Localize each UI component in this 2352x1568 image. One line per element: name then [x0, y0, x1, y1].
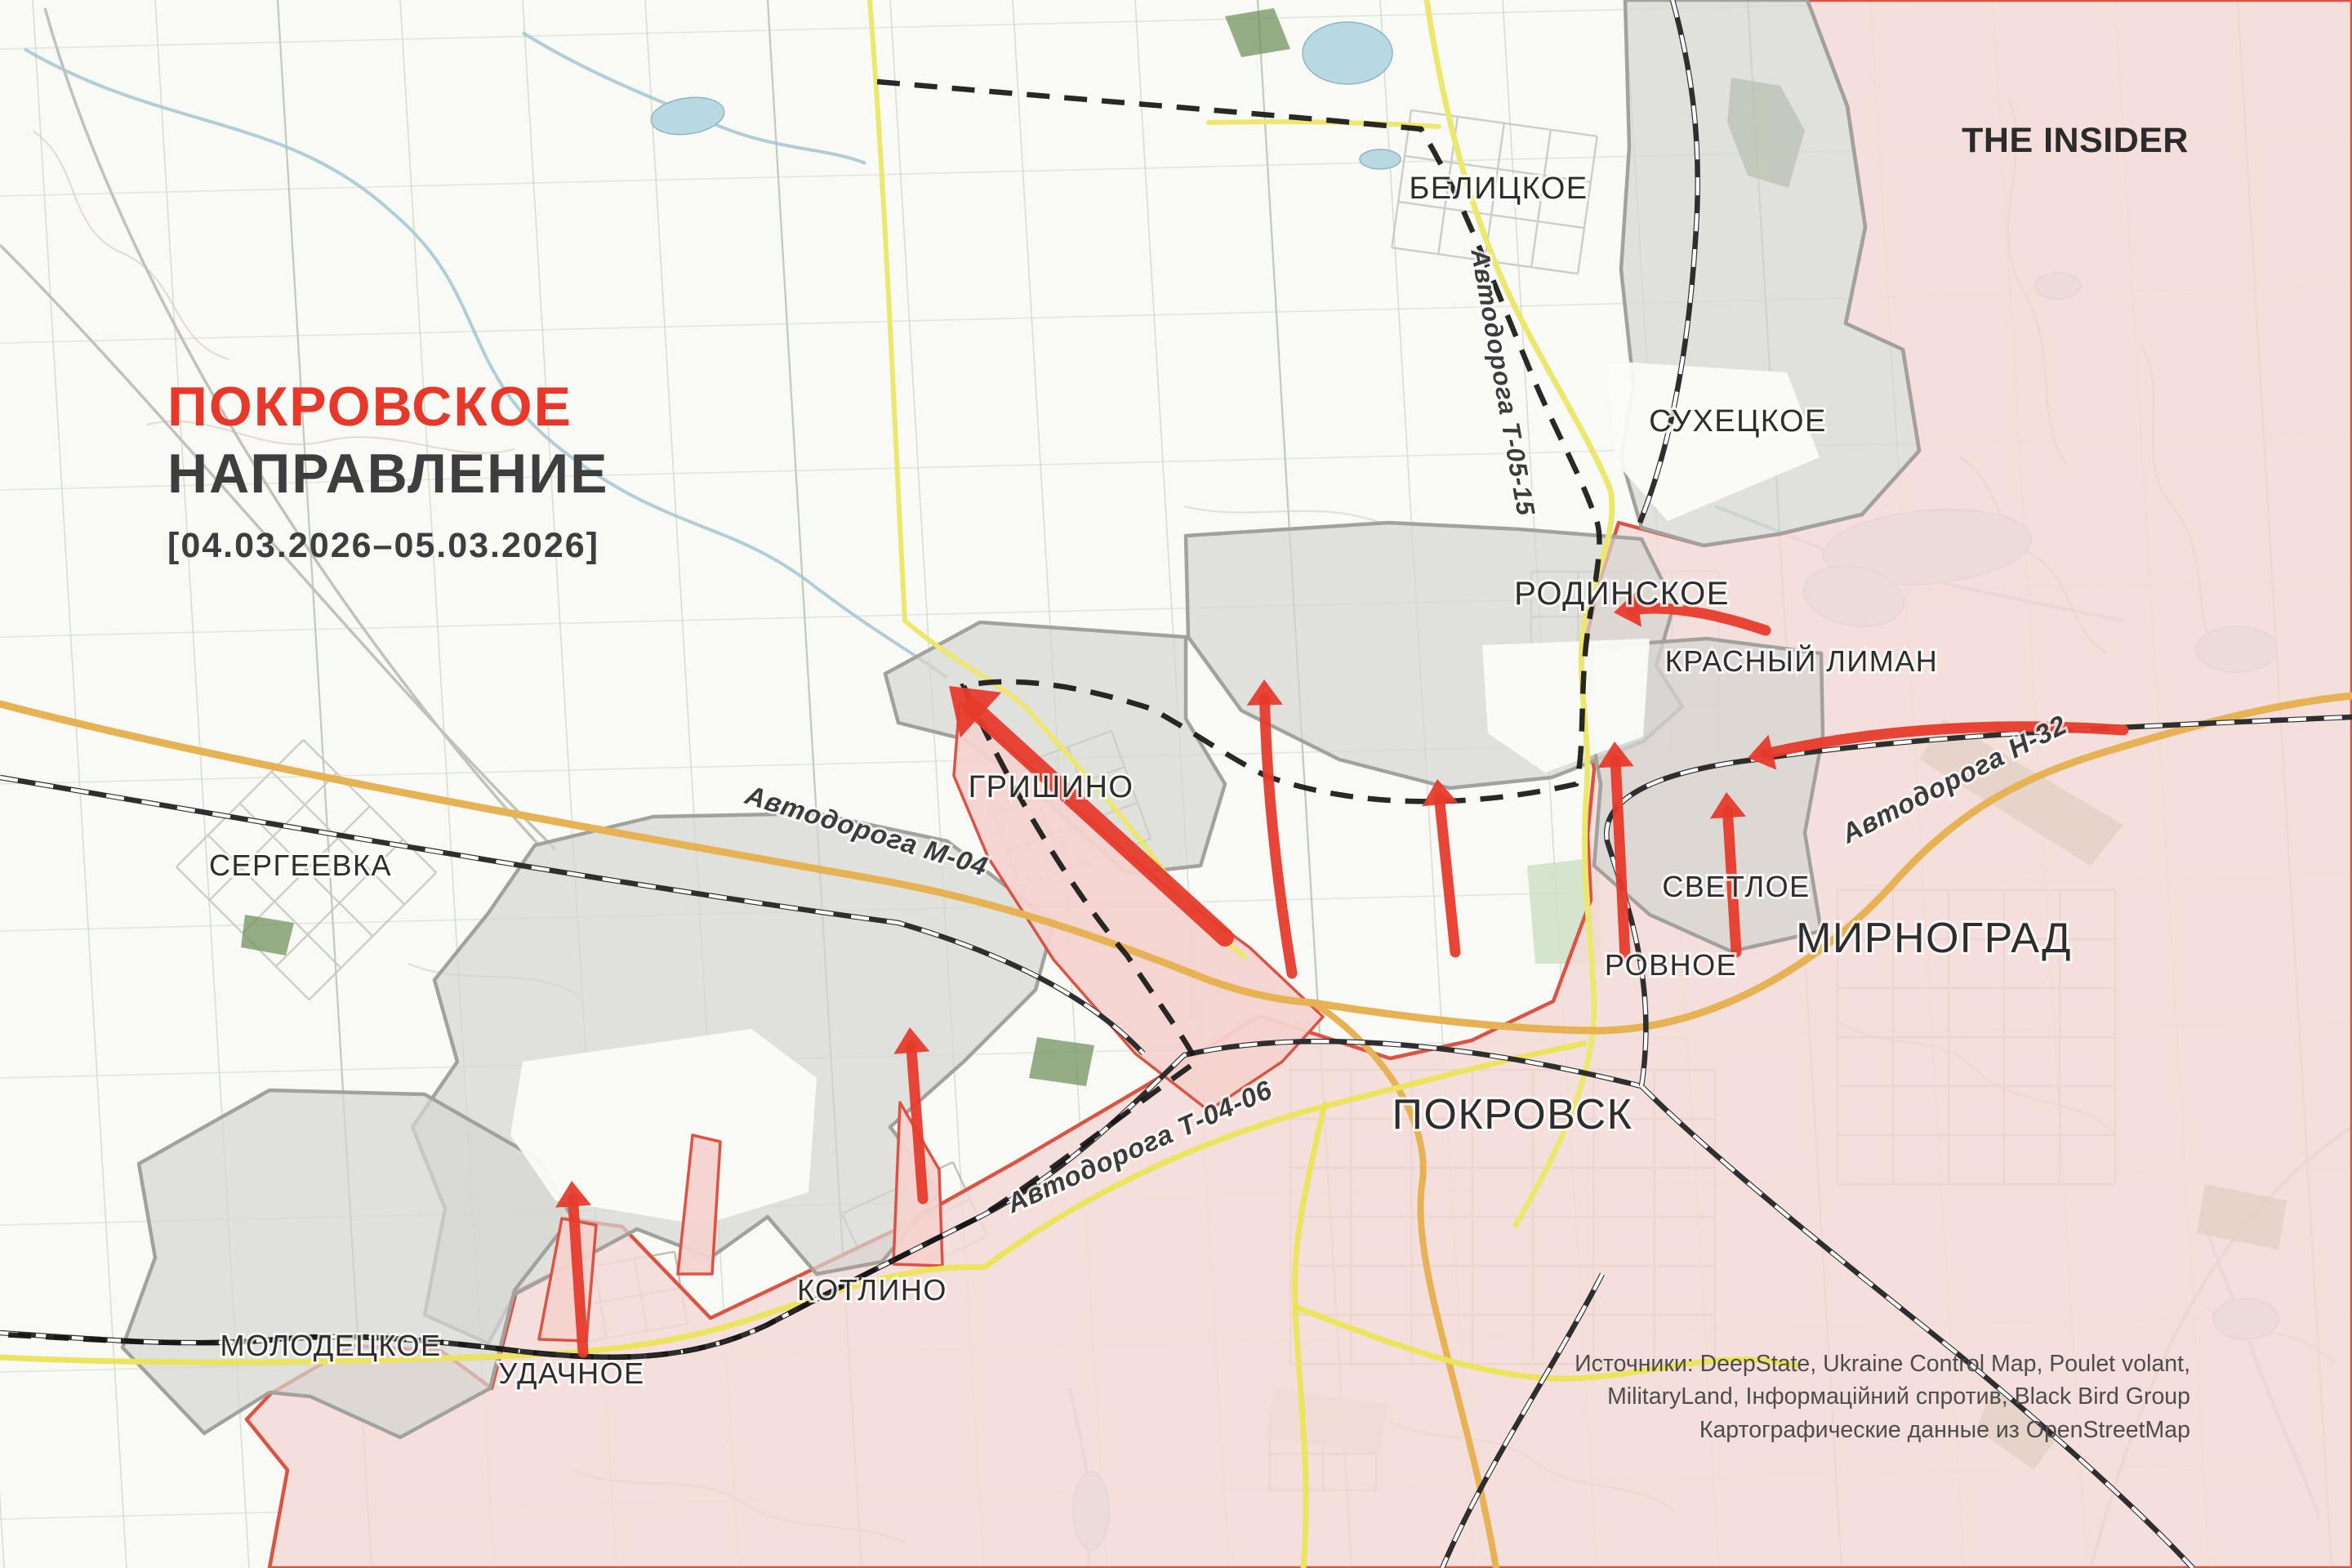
woodland	[1029, 1037, 1094, 1086]
map-stage: БЕЛИЦКОЕСУХЕЦКОЕРОДИНСКОЕКРАСНЫЙ ЛИМАНГР…	[0, 0, 2352, 1568]
place-label-belitskoe: БЕЛИЦКОЕ	[1409, 171, 1588, 206]
map-svg: БЕЛИЦКОЕСУХЕЦКОЕРОДИНСКОЕКРАСНЫЙ ЛИМАНГР…	[0, 0, 2352, 1568]
place-label-pokrovsk: ПОКРОВСК	[1392, 1091, 1633, 1138]
place-label-sukhetskoe: СУХЕЦКОЕ	[1649, 404, 1827, 439]
brand-logo: THE INSIDER	[1962, 121, 2189, 161]
title-date-range: [04.03.2026–05.03.2026]	[167, 528, 609, 565]
place-label-rodinskoe: РОДИНСКОЕ	[1514, 576, 1730, 612]
map-title-block: ПОКРОВСКОЕ НАПРАВЛЕНИЕ [04.03.2026–05.03…	[167, 377, 609, 565]
lake	[1303, 22, 1392, 84]
place-label-udachnoe: УДАЧНОЕ	[498, 1356, 644, 1390]
credits-cartography: Картографические данные из OpenStreetMap	[1575, 1414, 2190, 1446]
place-label-svetloe: СВЕТЛОЕ	[1662, 870, 1810, 903]
credits-block: Источники: DeepState, Ukraine Control Ma…	[1575, 1347, 2190, 1446]
credits-sources-line2: MilitaryLand, Інформаційний спротив, Bla…	[1575, 1380, 2190, 1413]
place-label-molodetskoe: МОЛОДЕЦКОЕ	[220, 1329, 441, 1362]
place-label-mirnograd: МИРНОГРАД	[1796, 915, 2072, 962]
title-direction-main: НАПРАВЛЕНИЕ	[167, 444, 609, 503]
place-label-rovnoe: РОВНОЕ	[1605, 948, 1737, 982]
credits-sources-line1: Источники: DeepState, Ukraine Control Ma…	[1575, 1347, 2190, 1380]
place-label-kotlino: КОТЛИНО	[797, 1273, 947, 1307]
place-label-krasny-liman: КРАСНЫЙ ЛИМАН	[1665, 644, 1939, 678]
title-direction-accent: ПОКРОВСКОЕ	[167, 377, 609, 436]
lake	[1360, 149, 1401, 169]
place-label-sergeevka: СЕРГЕЕВКА	[209, 849, 392, 882]
clearing	[510, 1029, 817, 1225]
place-label-grishino: ГРИШИНО	[969, 770, 1134, 804]
